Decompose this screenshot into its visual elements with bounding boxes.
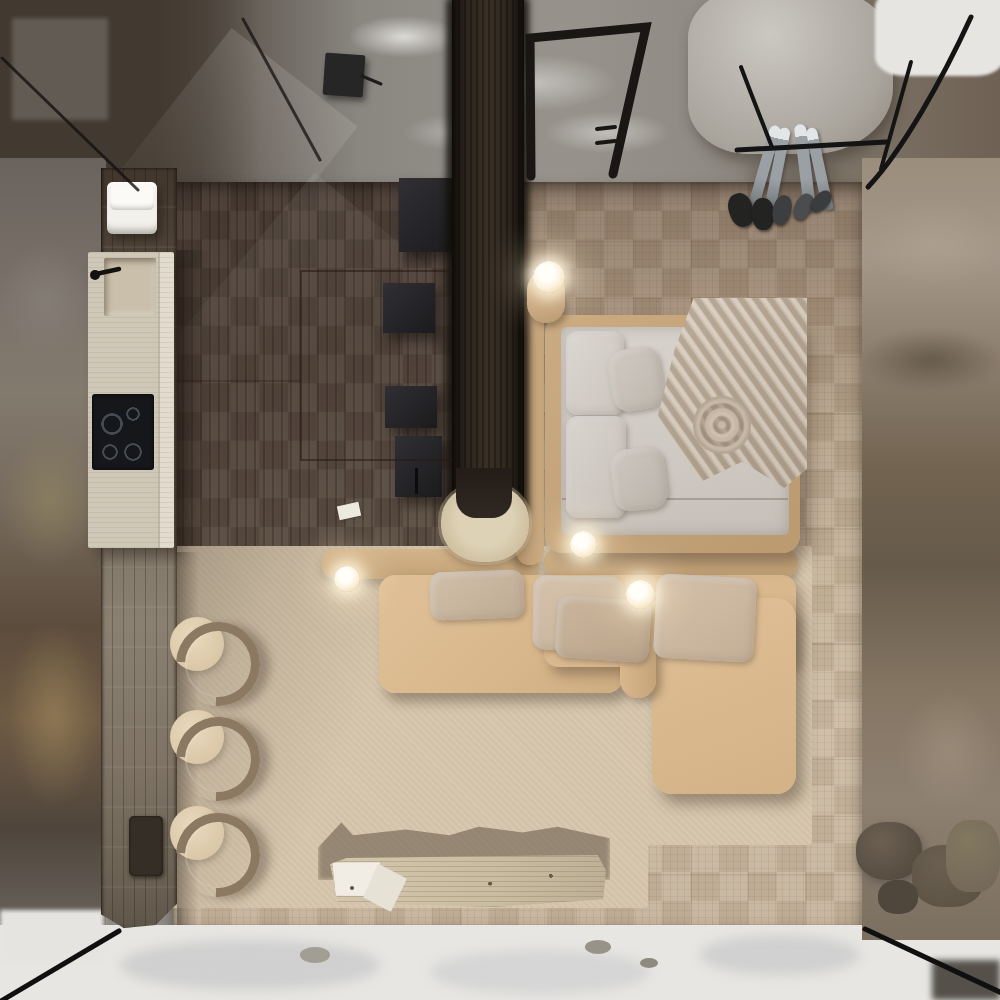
vignette-overlay [0,0,1000,1000]
cliff-cabin-render [0,0,1000,1000]
